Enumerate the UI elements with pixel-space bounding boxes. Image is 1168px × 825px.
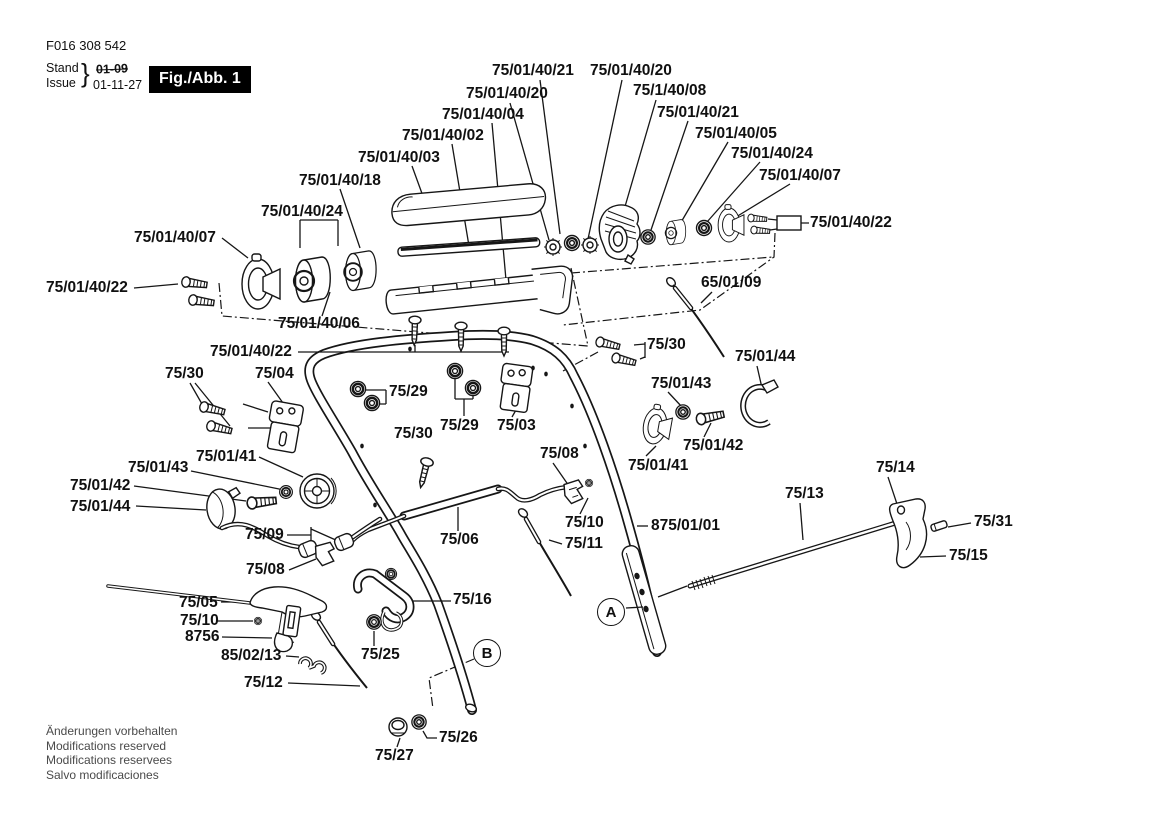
- part-label-75-01-40-24: 75/01/40/24: [731, 146, 813, 162]
- part-label-75-01-40-22: 75/01/40/22: [810, 215, 892, 231]
- bearing-drum-small: [665, 220, 685, 245]
- part-label-875-01-01: 875/01/01: [651, 518, 720, 534]
- clip-75-01-44-right: [743, 380, 778, 425]
- part-label-8756: 8756: [185, 629, 219, 645]
- part-label-75-08: 75/08: [246, 562, 285, 578]
- part-label-75-10: 75/10: [180, 613, 219, 629]
- roller-cover: [390, 182, 546, 226]
- part-label-75-08: 75/08: [540, 446, 579, 462]
- pulley-75-01-41-left: [300, 474, 336, 508]
- part-label-75-01-40-20: 75/01/40/20: [466, 86, 548, 102]
- part-label-75-01-44: 75/01/44: [735, 349, 795, 365]
- clutch-75-01-41-right: [641, 403, 675, 447]
- modifications-notice: Änderungen vorbehalten Modifications res…: [46, 724, 177, 782]
- part-label-75-01-41: 75/01/41: [628, 458, 688, 474]
- part-label-75-01-40-07: 75/01/40/07: [134, 230, 216, 246]
- washer-75-26: [412, 715, 426, 729]
- part-label-75-01-40-24: 75/01/40/24: [261, 204, 343, 220]
- clamp-75-03: [497, 363, 533, 413]
- part-label-75-05: 75/05: [179, 595, 218, 611]
- part-label-75-01-40-07: 75/01/40/07: [759, 168, 841, 184]
- part-label-75-01-40-20: 75/01/40/20: [590, 63, 672, 79]
- part-label-75-09: 75/09: [245, 527, 284, 543]
- clamp-75-04: [264, 400, 304, 453]
- screw-75-30-right: [595, 336, 621, 351]
- part-label-75-14: 75/14: [876, 460, 915, 476]
- clip-85-02-13: [300, 658, 325, 673]
- cable-75-12: [310, 610, 367, 688]
- rod-75-13: [690, 521, 902, 590]
- part-label-75-01-41: 75/01/41: [196, 449, 256, 465]
- star-nut: [544, 238, 562, 256]
- strap-75-16: [357, 573, 410, 630]
- part-label-75-25: 75/25: [361, 647, 400, 663]
- part-label-75-01-42: 75/01/42: [683, 438, 743, 454]
- end-cap-left: [242, 254, 280, 309]
- part-label-75-06: 75/06: [440, 532, 479, 548]
- part-label-75-13: 75/13: [785, 486, 824, 502]
- part-label-75-30: 75/30: [647, 337, 686, 353]
- bolt-75-01-42-left: [247, 495, 277, 510]
- part-label-75-1-40-08: 75/1/40/08: [633, 83, 706, 99]
- part-label-75-01-40-22: 75/01/40/22: [210, 344, 292, 360]
- screw-75-01-40-22-left: [181, 276, 207, 290]
- part-label-75-01-44: 75/01/44: [70, 499, 130, 515]
- view-marker-b: B: [473, 639, 501, 667]
- exploded-view-drawing: [0, 0, 1168, 825]
- part-label-65-01-09: 65/01/09: [701, 275, 761, 291]
- parts-diagram-page: F016 308 542 Stand Issue } 01-09 01-11-2…: [0, 0, 1168, 825]
- part-label-75-04: 75/04: [255, 366, 294, 382]
- clamp-75-08-right: [563, 479, 586, 504]
- part-label-75-11: 75/11: [565, 536, 603, 552]
- part-label-75-01-40-05: 75/01/40/05: [695, 126, 777, 142]
- screw-75-30-center: [415, 457, 435, 489]
- part-label-75-01-40-18: 75/01/40/18: [299, 173, 381, 189]
- part-label-85-02-13: 85/02/13: [221, 648, 281, 664]
- bearing-drum: [294, 257, 330, 302]
- section-boundaries: [219, 233, 775, 709]
- part-label-75-01-43: 75/01/43: [651, 376, 711, 392]
- clamp-75-08-left: [314, 542, 336, 566]
- part-label-75-03: 75/03: [497, 418, 536, 434]
- end-cap-right: [718, 205, 744, 242]
- part-label-75-31: 75/31: [974, 514, 1013, 530]
- part-label-75-15: 75/15: [949, 548, 988, 564]
- part-label-75-01-40-03: 75/01/40/03: [358, 150, 440, 166]
- cap-nut-75-27: [389, 718, 407, 736]
- part-label-75-26: 75/26: [439, 730, 478, 746]
- part-label-75-29: 75/29: [389, 384, 428, 400]
- part-label-75-01-40-06: 75/01/40/06: [278, 316, 360, 332]
- part-label-75-30: 75/30: [394, 426, 433, 442]
- part-label-75-01-43: 75/01/43: [128, 460, 188, 476]
- part-label-75-16: 75/16: [453, 592, 492, 608]
- part-label-75-10: 75/10: [565, 515, 604, 531]
- part-label-75-01-40-02: 75/01/40/02: [402, 128, 484, 144]
- part-label-75-30: 75/30: [165, 366, 204, 382]
- nut-75-25: [367, 615, 381, 629]
- view-marker-a: A: [597, 598, 625, 626]
- part-label-75-01-40-21: 75/01/40/21: [657, 105, 739, 121]
- part-label-75-29: 75/29: [440, 418, 479, 434]
- ratchet-piece: [599, 205, 640, 264]
- label-reference-box: [777, 216, 801, 230]
- bolt-75-01-42-right: [695, 409, 724, 426]
- part-label-75-01-40-22: 75/01/40/22: [46, 280, 128, 296]
- part-label-75-01-42: 75/01/42: [70, 478, 130, 494]
- part-label-75-01-40-21: 75/01/40/21: [492, 63, 574, 79]
- nut-75-29: [350, 381, 365, 396]
- pin-75-31: [930, 520, 947, 532]
- cable-75-11: [517, 507, 571, 596]
- part-label-75-01-40-04: 75/01/40/04: [442, 107, 524, 123]
- part-label-75-12: 75/12: [244, 675, 283, 691]
- part-label-75-27: 75/27: [375, 748, 414, 764]
- roller-rail: [398, 238, 540, 257]
